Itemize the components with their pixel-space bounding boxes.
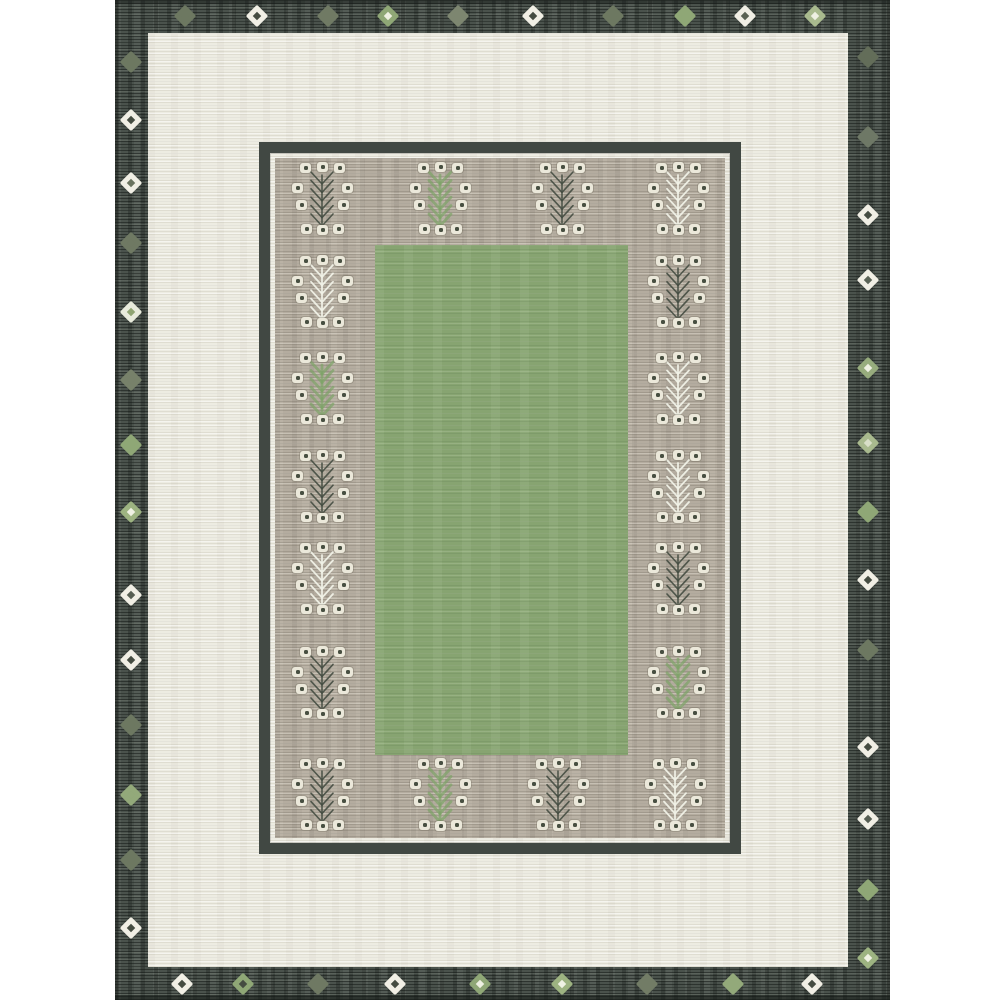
diamond-motif bbox=[120, 109, 143, 132]
diamond-motif bbox=[804, 5, 827, 28]
diamond-motif bbox=[602, 5, 625, 28]
diamond-motif bbox=[120, 301, 143, 324]
diamond-motif bbox=[857, 569, 880, 592]
diamond-motif bbox=[120, 172, 143, 195]
diamond-motif bbox=[857, 204, 880, 227]
diamond-motif bbox=[857, 639, 880, 662]
diamond-motif bbox=[120, 501, 143, 524]
diamond-motif bbox=[120, 784, 143, 807]
diamond-motif bbox=[734, 5, 757, 28]
diamond-motif bbox=[120, 849, 143, 872]
photo-canvas bbox=[0, 0, 1000, 1000]
diamond-motif bbox=[120, 917, 143, 940]
diamond-motif bbox=[246, 5, 269, 28]
diamond-motif bbox=[857, 357, 880, 380]
diamond-motif bbox=[674, 5, 697, 28]
diamond-motif bbox=[377, 5, 400, 28]
diamond-motif bbox=[120, 51, 143, 74]
diamond-motif bbox=[857, 947, 880, 970]
diamond-motif bbox=[469, 973, 492, 996]
diamond-motif bbox=[857, 46, 880, 69]
diamond-motif bbox=[522, 5, 545, 28]
diamond-motif bbox=[857, 808, 880, 831]
diamond-motif bbox=[857, 501, 880, 524]
diamond-motif bbox=[801, 973, 824, 996]
diamond-motif bbox=[307, 973, 330, 996]
diamond-motif bbox=[232, 973, 255, 996]
diamond-motif bbox=[120, 434, 143, 457]
diamond-motif bbox=[857, 126, 880, 149]
diamond-motif bbox=[551, 973, 574, 996]
diamond-motif bbox=[120, 714, 143, 737]
diamond-motif bbox=[384, 973, 407, 996]
diamond-motif bbox=[317, 5, 340, 28]
diamond-motif bbox=[171, 973, 194, 996]
diamond-motif bbox=[857, 879, 880, 902]
diamond-motif bbox=[120, 584, 143, 607]
diamond-motif bbox=[722, 973, 745, 996]
diamond-motif bbox=[857, 269, 880, 292]
diamond-motif bbox=[174, 5, 197, 28]
diamond-motif bbox=[857, 736, 880, 759]
diamond-motif bbox=[120, 369, 143, 392]
diamond-motif-layer bbox=[0, 0, 1000, 1000]
diamond-motif bbox=[120, 649, 143, 672]
diamond-motif bbox=[857, 432, 880, 455]
diamond-motif bbox=[447, 5, 470, 28]
diamond-motif bbox=[120, 232, 143, 255]
diamond-motif bbox=[636, 973, 659, 996]
